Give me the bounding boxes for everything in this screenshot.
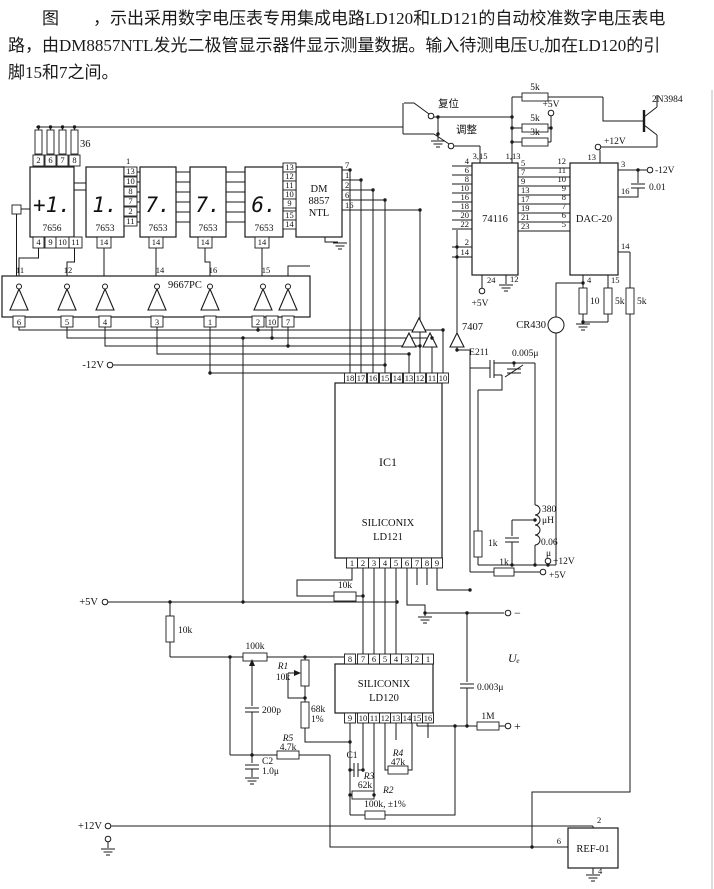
part-label: CR430 xyxy=(516,320,546,331)
plus-terminal-label: + xyxy=(514,719,521,733)
pin: 3 xyxy=(621,159,625,169)
part-label: 9667PC xyxy=(168,280,202,291)
pin: 14 xyxy=(621,241,630,251)
value-label: 10k xyxy=(338,581,353,591)
value-label: 10k xyxy=(178,626,193,636)
part-label: 74116 xyxy=(482,214,508,225)
value-label: 100k, ±1% xyxy=(364,800,406,810)
pin: 10 xyxy=(58,237,67,247)
pin: 9 xyxy=(287,198,291,208)
pin: 6 xyxy=(17,317,21,327)
supply-label: +5V xyxy=(549,571,566,581)
supply-label: +12V xyxy=(78,821,102,832)
supply-label: +5V xyxy=(543,100,560,110)
pin: 15 xyxy=(381,373,390,383)
value-label: 5k xyxy=(637,297,647,307)
pin: 6 xyxy=(372,654,376,664)
pin: 14 xyxy=(152,237,161,247)
pin: 14 xyxy=(393,373,402,383)
pin: 12 xyxy=(64,265,73,275)
pin: 16 xyxy=(345,200,354,210)
pin: 14 xyxy=(156,265,165,275)
pin: 2 xyxy=(256,317,260,327)
ref-des: R1 xyxy=(277,662,289,672)
pin: 8 xyxy=(128,186,132,196)
pin: 7 xyxy=(415,558,419,568)
supply-label: +12V xyxy=(553,557,575,567)
supply-label: -12V xyxy=(82,360,104,371)
pin: 13 xyxy=(392,713,401,723)
pin: 6 xyxy=(557,836,561,846)
pin: 11 xyxy=(126,216,134,226)
part-label: LD121 xyxy=(373,532,403,543)
pin: 14 xyxy=(201,237,210,247)
part-label: NTL xyxy=(309,208,329,219)
value-label: 5k xyxy=(530,83,540,93)
pin: 5 xyxy=(65,317,69,327)
pin: 2 xyxy=(361,558,365,568)
pin: 17 xyxy=(357,373,366,383)
pin: 23 xyxy=(521,221,530,231)
input-label: Uₑ xyxy=(508,651,520,665)
ref-des: R2 xyxy=(382,786,394,796)
value-label: 380 xyxy=(542,505,557,515)
pin: 15 xyxy=(413,713,422,723)
pin: 12 xyxy=(381,713,390,723)
supply-label: +5V xyxy=(79,597,98,608)
pin: 10 xyxy=(439,373,448,383)
pin: 22 xyxy=(461,219,470,229)
supply-label: +5V xyxy=(472,299,489,309)
pin: 14 xyxy=(258,237,267,247)
pin: 9 xyxy=(348,713,352,723)
value-label: 62k xyxy=(358,781,373,791)
pin: 1 xyxy=(350,558,354,568)
pin: 12 xyxy=(510,274,519,284)
pin: 6 xyxy=(48,155,52,165)
pin: 24 xyxy=(487,275,496,285)
pin: 5 xyxy=(383,654,387,664)
value-label: 1.0μ xyxy=(262,767,279,777)
inductor-coil xyxy=(535,505,540,545)
pin: 10 xyxy=(126,176,135,186)
part-label: 8857 xyxy=(309,196,330,207)
minus-terminal-label: − xyxy=(514,606,521,620)
pin: 13 xyxy=(405,373,414,383)
pin: 7 xyxy=(345,160,349,170)
pin: 5 xyxy=(394,558,398,568)
pin: 18 xyxy=(346,373,355,383)
value-label: 0.005μ xyxy=(512,349,538,359)
supply-label: +12V xyxy=(604,137,626,147)
value-label: μH xyxy=(542,516,554,526)
digit: 7. xyxy=(145,193,170,217)
value-label: 0.003μ xyxy=(477,683,503,693)
value-label: 5k xyxy=(615,297,625,307)
pin: 3,15 xyxy=(473,151,488,161)
pin: 1 xyxy=(126,156,130,166)
value-label: μ xyxy=(546,549,551,559)
wiper-arrow xyxy=(294,670,301,676)
value-label: 0.06 xyxy=(541,538,558,548)
value-label: 100k xyxy=(246,642,265,652)
part-label: 2N3984 xyxy=(652,95,683,105)
pin: 7 xyxy=(361,654,365,664)
pin: 5 xyxy=(562,219,566,229)
ref-des: C2 xyxy=(262,757,273,767)
pin: 10 xyxy=(268,317,277,327)
pin: 8 xyxy=(425,558,429,568)
value-label: 4.7k xyxy=(280,743,297,753)
pin: 7 xyxy=(286,317,290,327)
value-label: 1k xyxy=(488,539,498,549)
value-label: 5k xyxy=(530,114,540,124)
pin: 6 xyxy=(405,558,409,568)
pin: 4 xyxy=(587,275,592,285)
part-label: 7653 xyxy=(149,224,168,234)
part-label: 7656 xyxy=(43,224,62,234)
pin: 1 xyxy=(426,654,430,664)
part-label: DM xyxy=(311,184,329,195)
pin: 6 xyxy=(345,190,349,200)
value-label: 3k xyxy=(530,128,540,138)
pin: 15 xyxy=(611,275,620,285)
part-label: 7653 xyxy=(199,224,218,234)
value-label: 0.01 xyxy=(649,183,666,193)
pin: 9 xyxy=(48,237,52,247)
part-label: DAC-20 xyxy=(576,214,612,225)
pin: 14 xyxy=(285,219,294,229)
part-label: SILICONIX xyxy=(362,518,415,529)
pin: 16 xyxy=(369,373,378,383)
buffer-gates xyxy=(402,318,464,347)
pin: 3 xyxy=(372,558,376,568)
pin: 13 xyxy=(588,152,597,162)
value-label: 10k xyxy=(276,673,291,683)
pin: 3 xyxy=(405,654,409,664)
cr430-symbol xyxy=(548,317,564,333)
pin: 14 xyxy=(100,237,109,247)
part-label: LD120 xyxy=(369,693,399,704)
switch-label: 调整 xyxy=(456,123,477,136)
pin: 16 xyxy=(424,713,433,723)
pin: 1 xyxy=(208,317,212,327)
schematic-page: 图 ，示出采用数字电压表专用集成电路LD120和LD121的自动校准数字电压表电… xyxy=(0,0,714,889)
part-label: SILICONIX xyxy=(358,679,411,690)
pin: 7 xyxy=(60,155,64,165)
value-label: 1k xyxy=(499,558,509,568)
pin: 13 xyxy=(126,166,135,176)
value-label: 47k xyxy=(391,758,406,768)
part-label: E211 xyxy=(469,348,489,358)
ref-des: C1 xyxy=(346,751,357,761)
pin: 11 xyxy=(370,713,378,723)
pin: 14 xyxy=(403,713,412,723)
digit: 1. xyxy=(92,193,117,217)
circuit-diagram: +1. 7656 36 2 6 7 8 4 9 10 11 1. 7653 1 … xyxy=(0,0,714,889)
switch-label: 复位 xyxy=(438,97,459,110)
pin: 12 xyxy=(416,373,425,383)
pin: 2 xyxy=(345,180,349,190)
pin: 11 xyxy=(16,265,24,275)
part-label: 7407 xyxy=(462,322,483,333)
small-component xyxy=(12,205,21,214)
pin: 1,13 xyxy=(506,151,521,161)
supply-label: -12V xyxy=(655,166,675,176)
pin: 2 xyxy=(128,206,132,216)
pin: 2 xyxy=(597,815,601,825)
pin: 8 xyxy=(72,155,76,165)
pin: 16 xyxy=(209,265,218,275)
pin: 2 xyxy=(465,237,469,247)
pin: 9 xyxy=(435,558,439,568)
pin: 11 xyxy=(428,373,436,383)
pin: 11 xyxy=(71,237,79,247)
pin: 14 xyxy=(461,247,470,257)
value-label: 200p xyxy=(262,706,281,716)
part-label: REF-01 xyxy=(576,844,609,855)
pin: 10 xyxy=(359,713,368,723)
value-label: 68k xyxy=(311,705,326,715)
pin: 7 xyxy=(128,196,132,206)
value-label: 36 xyxy=(80,139,91,150)
part-label: 7653 xyxy=(96,224,115,234)
digit: 7. xyxy=(195,193,220,217)
pin: 2 xyxy=(415,654,419,664)
pin: 8 xyxy=(348,654,352,664)
pin: 3 xyxy=(155,317,159,327)
digit: +1. xyxy=(33,193,71,217)
value-label: 10 xyxy=(590,297,600,307)
pin: 16 xyxy=(621,186,630,196)
value-label: 1% xyxy=(311,715,324,725)
component-boxes xyxy=(2,163,618,868)
part-label: IC1 xyxy=(379,455,397,469)
digit: 6. xyxy=(251,193,276,217)
part-label: 7653 xyxy=(255,224,274,234)
value-label: 1M xyxy=(481,712,495,722)
pin: 2 xyxy=(36,155,40,165)
pin: 15 xyxy=(262,265,271,275)
pin: 1 xyxy=(345,170,349,180)
